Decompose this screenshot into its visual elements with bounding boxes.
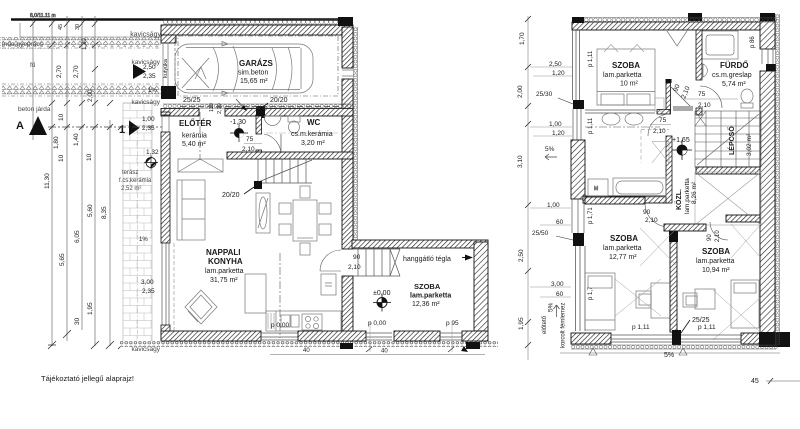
svg-text:5,40 m²: 5,40 m² bbox=[182, 141, 206, 148]
svg-text:3,20 m²: 3,20 m² bbox=[301, 140, 325, 147]
svg-text:2,10: 2,10 bbox=[217, 103, 223, 114]
svg-text:25/25: 25/25 bbox=[692, 317, 710, 324]
svg-text:31,75 m²: 31,75 m² bbox=[210, 277, 238, 284]
svg-text:beton járda: beton járda bbox=[18, 106, 51, 113]
svg-text:2,10: 2,10 bbox=[653, 128, 666, 135]
svg-text:1,80: 1,80 bbox=[53, 136, 60, 149]
svg-text:terász: terász bbox=[122, 170, 138, 176]
svg-text:1,20: 1,20 bbox=[552, 130, 565, 137]
svg-text:p 1,11: p 1,11 bbox=[588, 117, 594, 134]
svg-text:10,94 m²: 10,94 m² bbox=[702, 267, 730, 274]
svg-text:30: 30 bbox=[75, 24, 81, 30]
svg-text:1%: 1% bbox=[139, 237, 148, 243]
svg-text:fű: fű bbox=[30, 62, 36, 69]
svg-text:2,35: 2,35 bbox=[143, 73, 156, 80]
svg-text:1,20: 1,20 bbox=[552, 70, 565, 77]
svg-text:lam.parketta: lam.parketta bbox=[696, 258, 735, 265]
svg-text:2,35: 2,35 bbox=[142, 125, 155, 132]
svg-text:5,74 m²: 5,74 m² bbox=[722, 81, 746, 88]
svg-text:p 1,11: p 1,11 bbox=[588, 50, 594, 67]
svg-text:kavicságy: kavicságy bbox=[130, 32, 161, 39]
svg-text:FÜRDŐ: FÜRDŐ bbox=[720, 61, 748, 70]
svg-text:előtető: előtető bbox=[542, 315, 548, 334]
svg-text:kutyúka: kutyúka bbox=[163, 58, 169, 78]
svg-text:45: 45 bbox=[751, 378, 759, 385]
svg-text:5,60: 5,60 bbox=[87, 204, 94, 217]
svg-text:2,70: 2,70 bbox=[73, 65, 80, 78]
svg-text:10: 10 bbox=[86, 153, 93, 161]
svg-text:1,70: 1,70 bbox=[519, 32, 526, 45]
svg-text:15,65 m²: 15,65 m² bbox=[240, 78, 268, 85]
svg-text:SZOBA: SZOBA bbox=[702, 247, 730, 256]
svg-text:60: 60 bbox=[556, 291, 564, 298]
svg-text:lam.parketta: lam.parketta bbox=[603, 72, 642, 79]
svg-text:8,26 m²: 8,26 m² bbox=[691, 181, 698, 204]
svg-text:10: 10 bbox=[58, 113, 65, 121]
svg-text:1%: 1% bbox=[148, 88, 157, 94]
svg-text:ELŐTÉR: ELŐTÉR bbox=[179, 119, 212, 128]
svg-text:25/50: 25/50 bbox=[532, 230, 549, 237]
svg-text:2,50: 2,50 bbox=[518, 249, 525, 262]
svg-text:12,77 m²: 12,77 m² bbox=[609, 254, 637, 261]
svg-text:90: 90 bbox=[353, 254, 361, 261]
svg-text:lam.parketta: lam.parketta bbox=[603, 245, 642, 252]
svg-text:p 1,11: p 1,11 bbox=[698, 324, 716, 331]
svg-text:40: 40 bbox=[303, 348, 310, 354]
svg-text:f.cs.kerámia: f.cs.kerámia bbox=[119, 178, 152, 184]
svg-text:5,65: 5,65 bbox=[59, 253, 66, 266]
svg-text:korcolt fémlemez: korcolt fémlemez bbox=[561, 303, 567, 348]
svg-text:2,52 m²: 2,52 m² bbox=[121, 186, 141, 192]
svg-text:5%: 5% bbox=[545, 146, 555, 153]
svg-text:Tájékoztató jellegű alaprajz!: Tájékoztató jellegű alaprajz! bbox=[41, 374, 134, 383]
svg-text:1,00: 1,00 bbox=[142, 116, 155, 123]
svg-text:SZOBA: SZOBA bbox=[610, 234, 638, 243]
svg-text:1,95: 1,95 bbox=[518, 317, 525, 330]
svg-text:12,36 m²: 12,36 m² bbox=[412, 301, 440, 308]
svg-text:25/30: 25/30 bbox=[536, 91, 553, 98]
svg-text:KÖZL.: KÖZL. bbox=[674, 189, 683, 210]
svg-text:2,10: 2,10 bbox=[698, 102, 711, 109]
svg-text:p 0,00: p 0,00 bbox=[368, 320, 386, 327]
svg-text:60: 60 bbox=[556, 219, 564, 226]
svg-text:műa.gyeprács: műa.gyeprács bbox=[2, 41, 44, 48]
svg-text:3,10: 3,10 bbox=[517, 155, 524, 168]
svg-text:SZOBA: SZOBA bbox=[612, 61, 640, 70]
svg-text:1: 1 bbox=[119, 124, 125, 136]
svg-text:75: 75 bbox=[698, 91, 706, 98]
svg-text:1%: 1% bbox=[166, 89, 174, 95]
svg-text:2,70: 2,70 bbox=[56, 65, 63, 78]
svg-text:M: M bbox=[594, 186, 598, 192]
svg-text:kerámia: kerámia bbox=[182, 133, 207, 140]
svg-text:1,95: 1,95 bbox=[87, 302, 94, 315]
svg-text:1,20: 1,20 bbox=[82, 38, 88, 50]
svg-text:WC: WC bbox=[307, 118, 321, 127]
svg-text:lam.parketta: lam.parketta bbox=[205, 268, 244, 275]
svg-text:75: 75 bbox=[659, 117, 667, 124]
svg-text:5%: 5% bbox=[664, 352, 674, 359]
svg-text:p 1,71: p 1,71 bbox=[588, 207, 594, 224]
svg-text:2,50: 2,50 bbox=[143, 64, 156, 71]
svg-text:p 86: p 86 bbox=[750, 36, 756, 48]
svg-text:2,10: 2,10 bbox=[715, 230, 721, 242]
svg-text:2,35: 2,35 bbox=[142, 288, 155, 295]
svg-text:NAPPALI: NAPPALI bbox=[206, 248, 241, 257]
svg-text:-1,30: -1,30 bbox=[230, 119, 246, 126]
svg-text:SZOBA: SZOBA bbox=[414, 282, 441, 291]
svg-text:20/20: 20/20 bbox=[270, 97, 288, 104]
svg-text:3,02 m²: 3,02 m² bbox=[746, 133, 753, 156]
svg-text:p 95: p 95 bbox=[446, 320, 459, 327]
svg-text:40: 40 bbox=[381, 349, 388, 355]
svg-text:6,05: 6,05 bbox=[74, 230, 81, 243]
svg-text:30: 30 bbox=[74, 317, 81, 325]
svg-text:20/20: 20/20 bbox=[222, 192, 240, 199]
svg-text:sim.beton: sim.beton bbox=[238, 70, 268, 77]
svg-text:11,30: 11,30 bbox=[44, 173, 51, 189]
svg-text:kavicságy: kavicságy bbox=[131, 99, 160, 106]
svg-text:3,00: 3,00 bbox=[141, 279, 154, 286]
svg-text:5%: 5% bbox=[548, 302, 555, 312]
svg-text:25/25: 25/25 bbox=[183, 97, 201, 104]
svg-text:cs.m.greslap: cs.m.greslap bbox=[712, 72, 752, 79]
svg-text:p 1,11: p 1,11 bbox=[632, 324, 650, 331]
svg-text:8,35: 8,35 bbox=[101, 206, 108, 219]
svg-text:1,40: 1,40 bbox=[73, 133, 80, 146]
svg-text:2,00: 2,00 bbox=[517, 85, 524, 98]
svg-text:75: 75 bbox=[246, 136, 254, 143]
svg-text:2,10: 2,10 bbox=[645, 217, 658, 224]
svg-text:2,00: 2,00 bbox=[87, 89, 94, 102]
svg-text:110: 110 bbox=[209, 103, 215, 112]
svg-text:KONYHA: KONYHA bbox=[208, 257, 243, 266]
svg-text:lam.parketta: lam.parketta bbox=[410, 293, 451, 300]
svg-text:LÉPCSŐ: LÉPCSŐ bbox=[727, 126, 736, 155]
svg-text:45: 45 bbox=[58, 24, 64, 30]
svg-text:cs.m.kerámia: cs.m.kerámia bbox=[291, 131, 333, 138]
svg-text:GARÁZS: GARÁZS bbox=[239, 59, 273, 68]
svg-text:2,10: 2,10 bbox=[348, 264, 361, 271]
svg-text:kavicságy: kavicságy bbox=[131, 346, 160, 353]
svg-text:90: 90 bbox=[643, 209, 651, 216]
svg-text:1,32: 1,32 bbox=[146, 149, 159, 156]
svg-text:hanggátló tégla: hanggátló tégla bbox=[403, 256, 451, 263]
svg-text:10 m²: 10 m² bbox=[620, 81, 639, 88]
svg-text:90: 90 bbox=[707, 234, 713, 241]
svg-text:+1,65: +1,65 bbox=[672, 137, 690, 144]
svg-text:A: A bbox=[16, 120, 24, 132]
svg-text:10: 10 bbox=[58, 154, 65, 162]
svg-text:lam.parketta: lam.parketta bbox=[684, 178, 691, 214]
